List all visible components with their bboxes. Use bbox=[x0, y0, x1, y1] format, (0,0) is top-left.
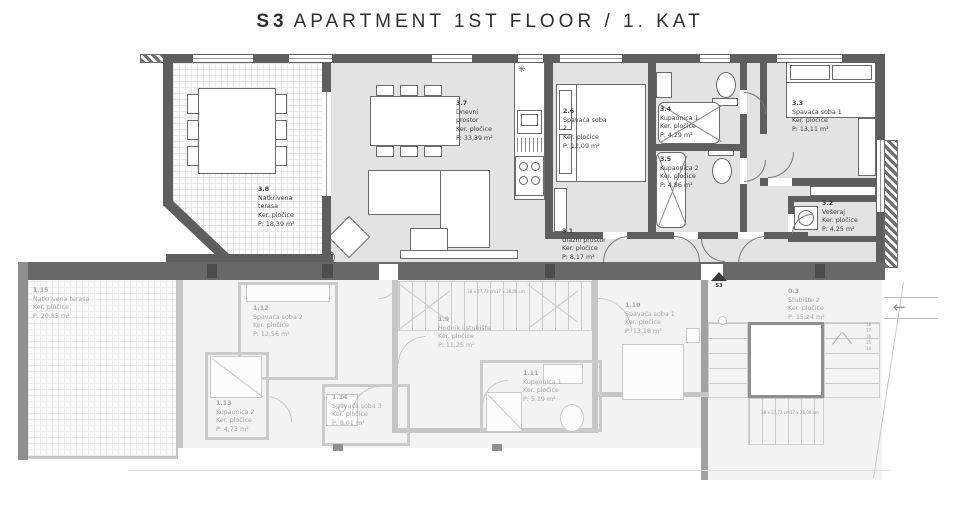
boundary-line bbox=[128, 470, 890, 471]
window bbox=[518, 55, 543, 62]
room-id: 1.12 bbox=[253, 305, 307, 314]
chair bbox=[187, 120, 199, 140]
room-floor-material: Ker. pločice bbox=[258, 212, 310, 221]
room-area: P: 5,19 m² bbox=[523, 396, 587, 405]
burner bbox=[519, 162, 528, 171]
chair bbox=[187, 94, 199, 114]
pillar bbox=[333, 444, 343, 451]
wall bbox=[760, 62, 767, 134]
room-id: 1.13 bbox=[216, 400, 270, 409]
room-area: P: 12,09 m² bbox=[563, 143, 611, 152]
room-area: P: 11,25 m² bbox=[438, 342, 494, 351]
window bbox=[193, 55, 253, 62]
room-area: P: 33,39 m² bbox=[456, 135, 502, 144]
pillow bbox=[832, 65, 872, 80]
bed bbox=[246, 284, 330, 302]
window bbox=[700, 55, 730, 62]
chair bbox=[376, 85, 394, 96]
room-floor-material: Ker. pločice bbox=[625, 319, 679, 328]
pillar bbox=[207, 264, 217, 278]
wall bbox=[545, 62, 553, 238]
entrance-label: S3 bbox=[709, 283, 729, 289]
room-label-1-10: 1.10 Spavaća soba 1 Ker. pločice P: 13,1… bbox=[625, 302, 679, 337]
burner bbox=[519, 176, 528, 185]
stair-note-line: 17 x 28,00 cm bbox=[496, 289, 525, 294]
room-area: P: 8,01 m² bbox=[332, 420, 384, 429]
entrance-arrow-icon bbox=[711, 272, 727, 281]
room-area: P: 4,73 m² bbox=[216, 426, 270, 435]
room-floor-material: Ker. pločice bbox=[792, 117, 844, 126]
sink bbox=[656, 72, 672, 98]
room-area: P: 8,17 m² bbox=[562, 254, 632, 263]
room-label-3-4: 3.4 Kupaonica 1 Ker. pločice P: 4,29 m² bbox=[660, 106, 720, 141]
staircase bbox=[708, 322, 748, 398]
room-area: P: 4,86 m² bbox=[660, 182, 720, 191]
stair-step-numbers: 18 17 16 15 14 bbox=[866, 322, 878, 352]
wardrobe bbox=[554, 188, 567, 232]
room-id: 3.7 bbox=[456, 100, 502, 109]
room-floor-material: Ker. pločice bbox=[563, 134, 611, 143]
wall-hatched bbox=[884, 140, 898, 268]
room-area: P: 18,39 m² bbox=[258, 221, 310, 230]
window bbox=[432, 55, 472, 62]
room-area: P: 15,24 m² bbox=[788, 314, 850, 323]
glazing-line bbox=[326, 92, 327, 196]
pillow bbox=[790, 65, 830, 80]
room-name: Natkrivena terasa bbox=[258, 195, 310, 212]
shelf bbox=[810, 186, 876, 196]
wall bbox=[701, 280, 708, 480]
staircase bbox=[748, 398, 824, 445]
room-id: 3.3 bbox=[792, 100, 844, 109]
room-label-1-13: 1.13 Kupaonica 2 Ker. pločice P: 4,73 m² bbox=[216, 400, 270, 435]
stair-note-line: 38 x 27,72 cm bbox=[467, 289, 496, 294]
stair-note-line: 17 x 28,00 cm bbox=[790, 410, 819, 415]
room-id: 1.10 bbox=[625, 302, 679, 311]
cooktop bbox=[515, 156, 544, 196]
wardrobe bbox=[858, 118, 876, 176]
boiler-icon: ✳ bbox=[518, 66, 526, 75]
window bbox=[777, 55, 842, 62]
wall bbox=[788, 236, 885, 242]
toilet bbox=[560, 404, 584, 432]
chair bbox=[376, 146, 394, 157]
bed-line bbox=[787, 82, 875, 83]
burner bbox=[531, 162, 540, 171]
toilet bbox=[716, 72, 736, 98]
chair bbox=[275, 120, 287, 140]
room-label-3-8: 3.8 Natkrivena terasa Ker. pločice P: 18… bbox=[258, 186, 310, 229]
dishwasher bbox=[517, 138, 542, 152]
bed bbox=[622, 344, 684, 400]
chair bbox=[424, 85, 442, 96]
stair-note-line: 38 x 27,72 cm bbox=[761, 410, 790, 415]
room-floor-material: Ker. pločice bbox=[788, 305, 850, 314]
window bbox=[289, 55, 332, 62]
title-text: APARTMENT 1ST FLOOR / 1. KAT bbox=[294, 11, 704, 32]
boundary-line bbox=[28, 458, 178, 459]
pillar bbox=[815, 264, 825, 278]
room-label-0-3: 0.3 Stubište 2 Ker. pločice P: 15,24 m² bbox=[788, 288, 850, 323]
chair bbox=[400, 85, 418, 96]
chair bbox=[424, 146, 442, 157]
pillar bbox=[492, 444, 502, 451]
room-label-1-15: 1.15 Natkrivena terasa Ker. pločice P: 2… bbox=[33, 287, 93, 322]
room-label-3-3: 3.3 Spavaća soba 1 Ker. pločice P: 13,11… bbox=[792, 100, 844, 135]
wall bbox=[740, 62, 747, 238]
window bbox=[560, 55, 622, 62]
wall-band bbox=[18, 262, 885, 280]
pillar bbox=[322, 264, 333, 278]
room-id: 1.15 bbox=[33, 287, 93, 296]
stair-start-marker bbox=[718, 316, 727, 325]
wall bbox=[648, 62, 656, 238]
room-label-3-7: 3.7 Dnevni prostor Ker. pločice P: 33,39… bbox=[456, 100, 502, 143]
room-id: 2.6 bbox=[563, 108, 611, 117]
room-id: 3.4 bbox=[660, 106, 720, 115]
room-area: P: 20,85 m² bbox=[33, 313, 93, 322]
room-floor-material: Ker. pločice bbox=[660, 173, 720, 182]
room-area: P: 4,29 m² bbox=[660, 132, 720, 141]
tv-bench bbox=[400, 250, 518, 259]
room-name: Dnevni prostor bbox=[456, 109, 502, 126]
room-floor-material: Ker. pločice bbox=[438, 333, 494, 342]
room-label-3-1: 3.1 Ulazni prostor Ker. pločice P: 8,17 … bbox=[562, 228, 632, 263]
chair bbox=[187, 146, 199, 166]
door-gap bbox=[379, 264, 398, 280]
burner bbox=[531, 176, 540, 185]
stair-dimension-note: 38 x 27,72 cm17 x 28,00 cm bbox=[760, 410, 820, 416]
dining-table bbox=[370, 96, 460, 146]
room-floor-material: Ker. pločice bbox=[562, 245, 632, 254]
room-floor-material: Ker. pločice bbox=[660, 123, 720, 132]
room-label-1-14: 1.14 Spavaća soba 3 Ker. pločice P: 8,01… bbox=[332, 394, 384, 429]
room-floor-material: Ker. pločice bbox=[332, 411, 384, 420]
page-title: S3APARTMENT 1ST FLOOR / 1. KAT bbox=[0, 11, 960, 33]
floor-plan: S3APARTMENT 1ST FLOOR / 1. KAT 38 x 27,7… bbox=[0, 0, 960, 524]
chair bbox=[275, 94, 287, 114]
room-label-1-9: 1.9 Hodnik i stubište Ker. pločice P: 11… bbox=[438, 316, 494, 351]
room-id: 1.11 bbox=[523, 370, 587, 379]
room-id: 3.2 bbox=[822, 200, 878, 209]
room-id: 3.8 bbox=[258, 186, 310, 195]
nightstand bbox=[686, 328, 700, 343]
room-floor-material: Ker. pločice bbox=[456, 126, 502, 135]
room-label-3-5: 3.5 Kupaonica 2 Ker. pločice P: 4,86 m² bbox=[660, 156, 720, 191]
room-floor-material: Ker. pločice bbox=[216, 417, 270, 426]
room-label-1-11: 1.11 Kupaonica 1 Ker. pločice P: 5,19 m² bbox=[523, 370, 587, 405]
room-id: 1.9 bbox=[438, 316, 494, 325]
room-id: 3.5 bbox=[660, 156, 720, 165]
wall bbox=[163, 54, 173, 206]
room-area: P: 13,18 m² bbox=[625, 328, 679, 337]
chair bbox=[275, 146, 287, 166]
room-floor-material: Ker. pločice bbox=[33, 304, 93, 313]
dining-table bbox=[198, 88, 276, 174]
wall bbox=[656, 144, 742, 151]
room-id: 1.14 bbox=[332, 394, 384, 403]
boundary-line bbox=[884, 318, 938, 319]
room-floor-material: Ker. pločice bbox=[253, 322, 307, 331]
room-area: P: 12,56 m² bbox=[253, 331, 307, 340]
room-id: 0.3 bbox=[788, 288, 850, 297]
room-label-3-2: 3.2 Vešeraj Ker. pločice P: 4,25 m² bbox=[822, 200, 878, 235]
room-area: P: 4,25 m² bbox=[822, 226, 878, 235]
room-name: Spavaća soba 2 bbox=[563, 117, 611, 134]
stair-dimension-note: 38 x 27,72 cm17 x 28,00 cm bbox=[466, 289, 526, 295]
room-label-1-12: 1.12 Spavaća soba 2 Ker. pločice P: 12,5… bbox=[253, 305, 307, 340]
oven-window bbox=[521, 114, 538, 126]
pillar bbox=[545, 264, 555, 278]
room-area: P: 13,11 m² bbox=[792, 126, 844, 135]
title-unit: S3 bbox=[256, 11, 287, 32]
room-floor-material: Ker. pločice bbox=[822, 217, 878, 226]
wall bbox=[178, 280, 183, 448]
direction-arrow-icon: ← bbox=[893, 300, 906, 315]
room-floor-material: Ker. pločice bbox=[523, 387, 587, 396]
stairwell-core bbox=[748, 322, 824, 398]
door-gap bbox=[768, 178, 792, 186]
room-label-2-6: 2.6 Spavaća soba 2 Ker. pločice P: 12,09… bbox=[563, 108, 611, 151]
chair bbox=[400, 146, 418, 157]
wall bbox=[18, 262, 28, 460]
room-id: 3.1 bbox=[562, 228, 632, 237]
